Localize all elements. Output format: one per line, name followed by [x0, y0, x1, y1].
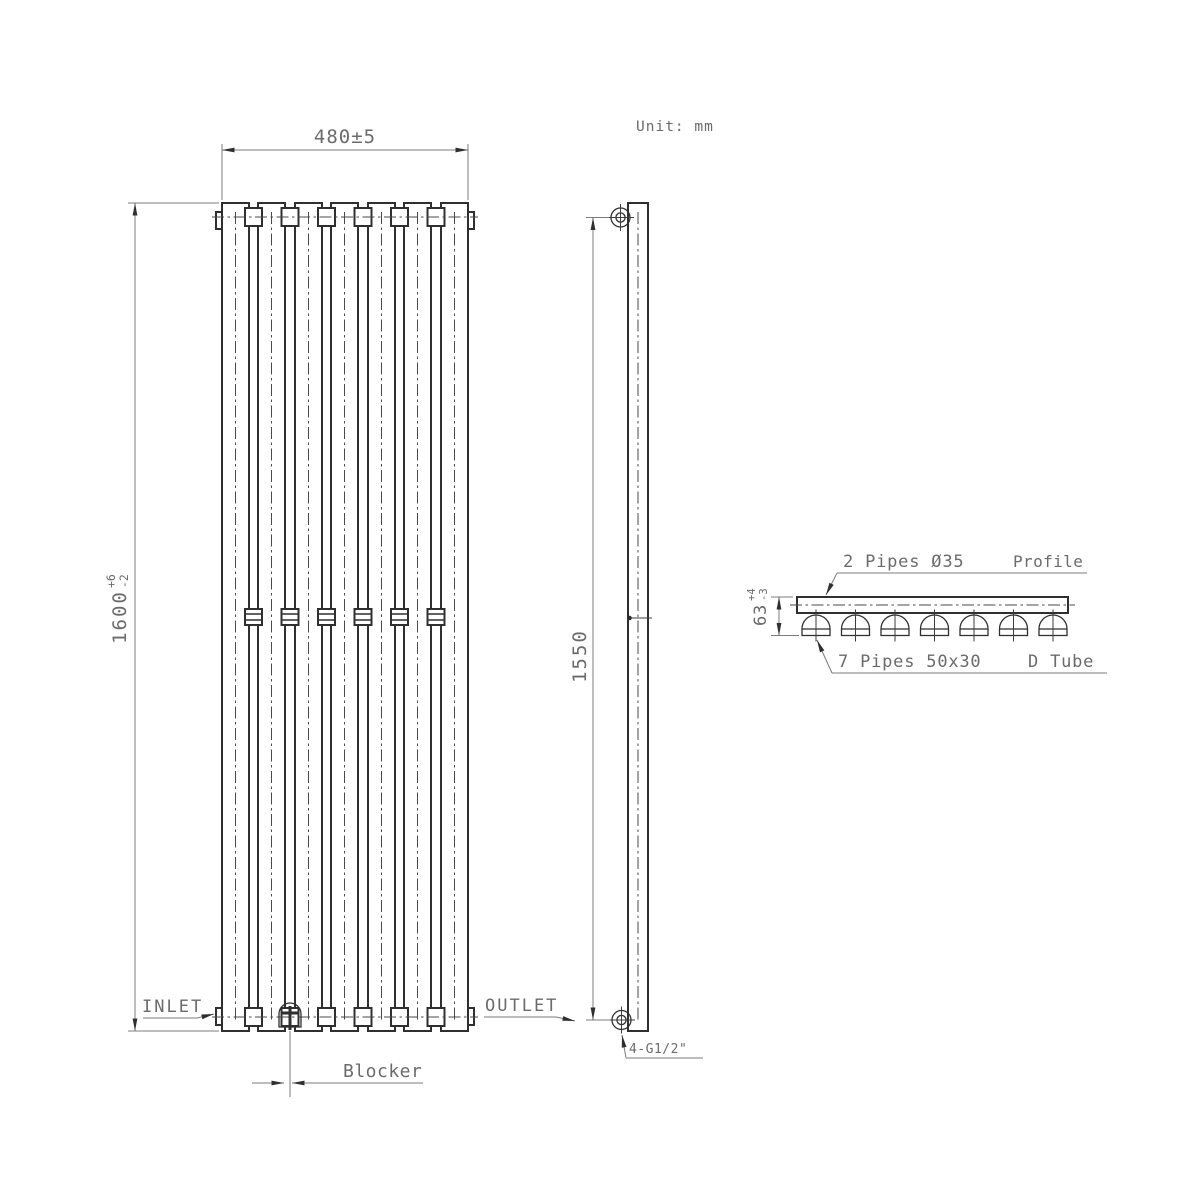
- side-mid-tab-dot: [627, 616, 632, 621]
- unit-note: Unit: mm: [636, 119, 714, 135]
- pipes-top-label: 2 Pipes Ø35: [843, 552, 964, 572]
- front-view: 480±5 1600 +6 -2 INLET OUTLET Blocker: [104, 126, 575, 1097]
- height-dim-tol-plus: +6: [104, 574, 118, 588]
- width-dimension: 480±5: [222, 126, 468, 200]
- bracket-spacing-dimension: 1550: [569, 218, 610, 1021]
- pipes-bottom-annotation: 7 Pipes 50x30 D Tube: [817, 640, 1107, 673]
- d-tube: [881, 610, 909, 642]
- outlet-arrow: [484, 1017, 575, 1021]
- thread-label: 4-G1/2": [629, 1042, 687, 1057]
- d-tube: [1039, 610, 1067, 642]
- depth-dim-tol-plus: +4: [746, 588, 758, 601]
- outlet-label: OUTLET: [485, 996, 558, 1016]
- pipes-bottom-label: 7 Pipes 50x30: [838, 652, 981, 672]
- blocker-label: Blocker: [343, 1061, 422, 1082]
- radiator-technical-drawing: 480±5 1600 +6 -2 INLET OUTLET Blocker: [0, 0, 1200, 1200]
- thread-annotation: 4-G1/2": [622, 1035, 703, 1058]
- width-dim-text: 480±5: [314, 126, 376, 148]
- d-tube: [842, 610, 870, 642]
- d-tubes: [802, 610, 1067, 642]
- inlet-annotation: INLET: [142, 997, 214, 1018]
- side-view: 1550 4-G1/2": [569, 203, 703, 1058]
- profile-label: Profile: [1013, 552, 1083, 571]
- profile-view: 63 +4 -3 2 Pipes Ø35 Profile 7 Pipes 50x…: [746, 552, 1107, 673]
- inlet-label: INLET: [142, 997, 203, 1017]
- d-tube: [802, 610, 830, 642]
- drawing-canvas: 480±5 1600 +6 -2 INLET OUTLET Blocker: [0, 0, 1200, 1200]
- outlet-annotation: OUTLET: [484, 996, 575, 1021]
- d-tube: [960, 610, 988, 642]
- bracket-spacing-dim-text: 1550: [569, 629, 591, 683]
- d-tube: [921, 610, 949, 642]
- depth-dim-text: 63: [751, 604, 771, 626]
- depth-dimension: 63 +4 -3: [746, 588, 799, 635]
- height-dim-tol-minus: -2: [117, 574, 131, 588]
- height-dimension: 1600 +6 -2: [104, 203, 219, 1031]
- tube-type-label: D Tube: [1028, 652, 1094, 672]
- depth-dim-tol-minus: -3: [758, 588, 770, 601]
- blocker-annotation: Blocker: [252, 1061, 423, 1083]
- pipes-top-annotation: 2 Pipes Ø35 Profile: [826, 552, 1087, 595]
- d-tube: [1000, 610, 1028, 642]
- height-dim-text: 1600: [109, 590, 131, 644]
